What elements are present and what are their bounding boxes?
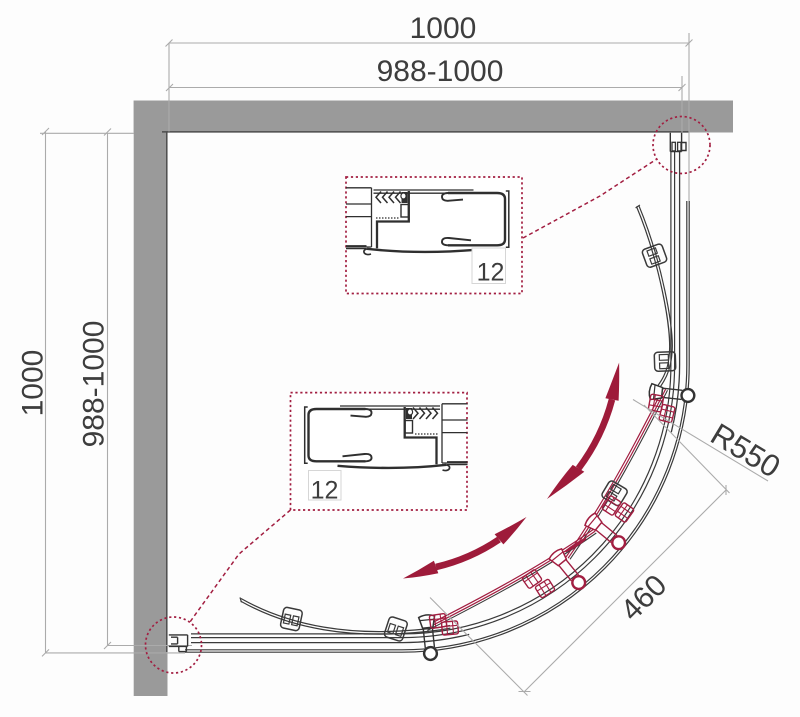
svg-text:988-1000: 988-1000 — [377, 55, 504, 88]
svg-text:12: 12 — [311, 477, 339, 505]
svg-text:988-1000: 988-1000 — [78, 321, 111, 448]
svg-text:12: 12 — [477, 259, 505, 287]
svg-text:1000: 1000 — [17, 350, 50, 417]
svg-text:1000: 1000 — [410, 12, 477, 45]
